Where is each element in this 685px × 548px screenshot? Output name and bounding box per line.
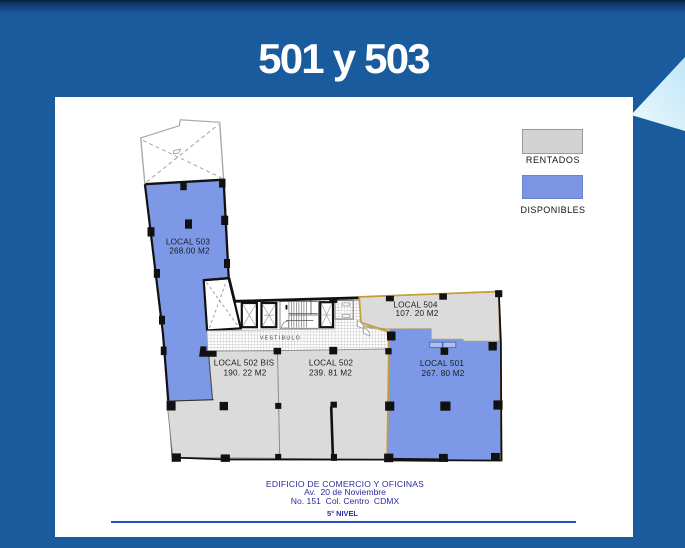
svg-text:268.00 M2: 268.00 M2 [169,247,210,256]
svg-text:267. 80 M2: 267. 80 M2 [422,369,465,378]
svg-text:190. 22 M2: 190. 22 M2 [224,369,267,378]
svg-text:239. 81 M2: 239. 81 M2 [309,369,352,378]
svg-text:107. 20 M2: 107. 20 M2 [396,309,439,318]
svg-text:LOCAL 502: LOCAL 502 [309,359,354,368]
svg-text:LOCAL 502 BIS: LOCAL 502 BIS [214,359,275,368]
svg-text:LOCAL 501: LOCAL 501 [420,359,465,368]
svg-text:VESTIBULO: VESTIBULO [260,336,301,342]
svg-text:LOCAL 503: LOCAL 503 [166,238,211,247]
